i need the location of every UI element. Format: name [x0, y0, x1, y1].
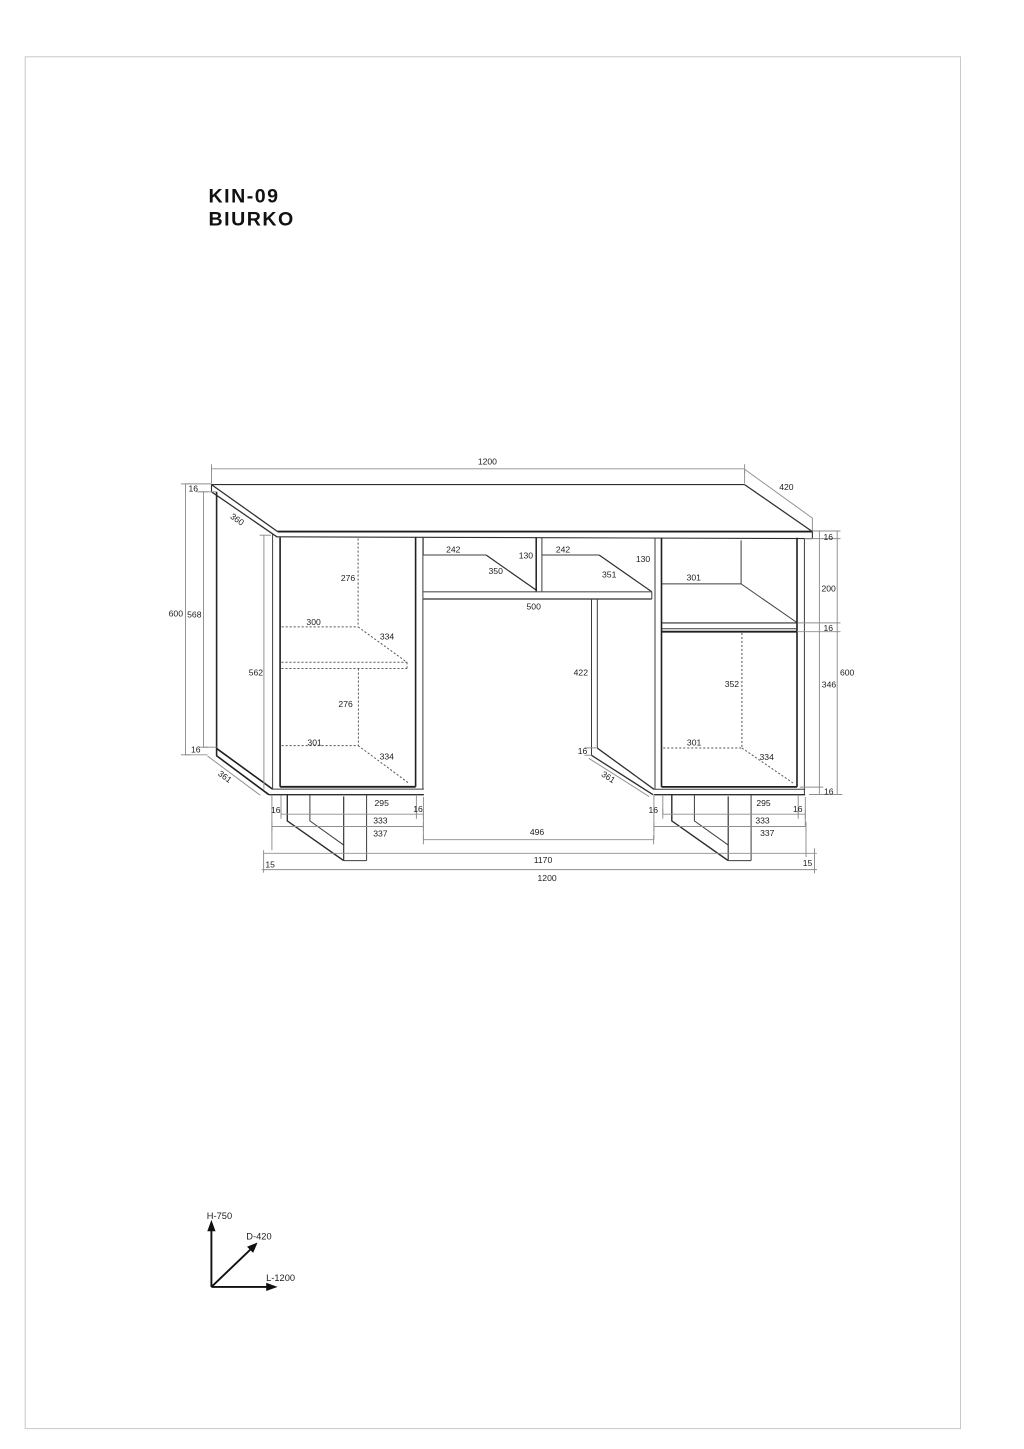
svg-text:422: 422 [574, 668, 589, 678]
svg-text:16: 16 [824, 532, 834, 542]
svg-text:334: 334 [380, 751, 395, 761]
svg-text:130: 130 [636, 554, 651, 564]
svg-text:16: 16 [191, 744, 201, 754]
svg-text:1170: 1170 [534, 855, 553, 865]
svg-text:420: 420 [779, 482, 794, 492]
svg-text:276: 276 [341, 573, 356, 583]
svg-text:15: 15 [265, 859, 275, 869]
svg-text:130: 130 [519, 550, 534, 560]
svg-text:16: 16 [649, 805, 659, 815]
svg-text:242: 242 [446, 545, 461, 555]
svg-text:295: 295 [756, 798, 771, 808]
svg-text:200: 200 [822, 584, 837, 594]
svg-text:496: 496 [530, 827, 545, 837]
svg-text:300: 300 [306, 617, 321, 627]
svg-text:H-750: H-750 [207, 1211, 232, 1221]
svg-text:600: 600 [840, 668, 855, 678]
svg-text:334: 334 [380, 632, 395, 642]
svg-text:301: 301 [687, 573, 702, 583]
svg-text:16: 16 [271, 805, 281, 815]
svg-text:D-420: D-420 [246, 1231, 271, 1241]
svg-text:334: 334 [760, 752, 775, 762]
svg-text:BIURKO: BIURKO [209, 208, 295, 230]
svg-text:301: 301 [687, 738, 702, 748]
svg-text:562: 562 [249, 667, 264, 677]
svg-text:568: 568 [187, 609, 202, 619]
svg-text:16: 16 [824, 623, 834, 633]
svg-text:337: 337 [760, 828, 775, 838]
svg-text:295: 295 [375, 798, 390, 808]
svg-text:276: 276 [338, 699, 353, 709]
svg-text:352: 352 [725, 679, 740, 689]
svg-text:242: 242 [556, 545, 571, 555]
svg-text:337: 337 [373, 828, 388, 838]
svg-text:351: 351 [602, 570, 617, 580]
svg-text:16: 16 [793, 804, 803, 814]
svg-text:16: 16 [413, 804, 423, 814]
svg-text:16: 16 [578, 746, 588, 756]
svg-text:1200: 1200 [538, 873, 557, 883]
svg-text:16: 16 [824, 787, 834, 797]
svg-text:15: 15 [803, 858, 813, 868]
svg-text:600: 600 [169, 609, 184, 619]
svg-text:350: 350 [489, 566, 504, 576]
svg-text:333: 333 [755, 815, 770, 825]
svg-text:1200: 1200 [478, 456, 497, 466]
svg-text:333: 333 [373, 815, 388, 825]
svg-text:L-1200: L-1200 [266, 1273, 295, 1283]
svg-text:301: 301 [307, 737, 322, 747]
svg-text:KIN-09: KIN-09 [209, 186, 280, 208]
svg-text:16: 16 [188, 484, 198, 494]
svg-text:500: 500 [527, 602, 542, 612]
svg-text:346: 346 [822, 680, 837, 690]
